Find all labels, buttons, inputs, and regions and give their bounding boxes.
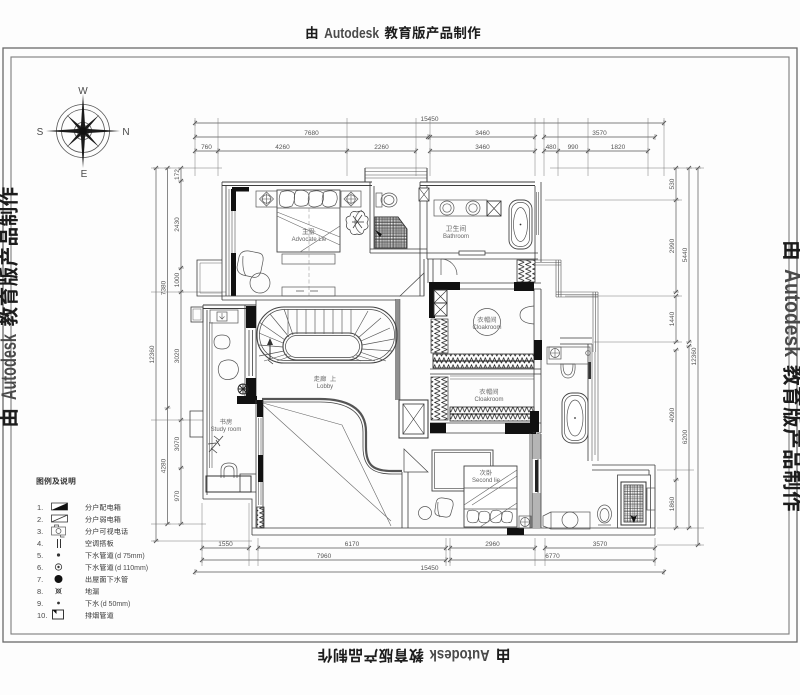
svg-text:990: 990 bbox=[568, 144, 579, 151]
svg-text:2.: 2. bbox=[37, 515, 43, 524]
svg-text:6.: 6. bbox=[37, 563, 43, 572]
svg-text:1000: 1000 bbox=[174, 272, 181, 287]
svg-text:530: 530 bbox=[669, 178, 676, 189]
svg-text:N: N bbox=[122, 127, 129, 138]
svg-text:4280: 4280 bbox=[161, 458, 168, 473]
svg-text:7380: 7380 bbox=[161, 280, 168, 295]
svg-text:Autodesk: Autodesk bbox=[324, 26, 380, 42]
svg-text:W: W bbox=[78, 86, 88, 97]
svg-text:4090: 4090 bbox=[669, 407, 676, 422]
svg-text:E: E bbox=[81, 169, 88, 180]
svg-text:7680: 7680 bbox=[304, 130, 319, 137]
svg-text:3570: 3570 bbox=[592, 130, 607, 137]
svg-text:Autodesk: Autodesk bbox=[780, 269, 800, 358]
svg-text:Autodesk: Autodesk bbox=[429, 646, 489, 663]
svg-text:7.: 7. bbox=[37, 575, 43, 584]
svg-text:(d 110mm): (d 110mm) bbox=[115, 565, 148, 572]
svg-text:172: 172 bbox=[174, 169, 181, 180]
svg-text:Autodesk: Autodesk bbox=[0, 334, 21, 400]
svg-text:3070: 3070 bbox=[174, 436, 181, 451]
svg-text:970: 970 bbox=[174, 490, 181, 501]
svg-text:6770: 6770 bbox=[545, 553, 560, 560]
svg-text:9.: 9. bbox=[37, 599, 43, 608]
svg-text:1440: 1440 bbox=[669, 311, 676, 326]
svg-text:2960: 2960 bbox=[485, 541, 500, 548]
svg-text:12360: 12360 bbox=[149, 345, 156, 363]
svg-text:2430: 2430 bbox=[174, 217, 181, 232]
svg-text:5.: 5. bbox=[37, 551, 43, 560]
svg-text:3460: 3460 bbox=[475, 130, 490, 137]
svg-text:15450: 15450 bbox=[420, 565, 438, 572]
svg-text:(d 75mm): (d 75mm) bbox=[115, 553, 145, 560]
svg-text:(d 50mm): (d 50mm) bbox=[100, 601, 130, 608]
svg-text:1820: 1820 bbox=[611, 144, 626, 151]
svg-text:1550: 1550 bbox=[218, 541, 233, 548]
svg-text:Second lie: Second lie bbox=[472, 478, 501, 484]
svg-text:760: 760 bbox=[201, 144, 212, 151]
svg-text:4.: 4. bbox=[37, 539, 43, 548]
svg-text:Cloakroom: Cloakroom bbox=[474, 397, 503, 403]
svg-text:2990: 2990 bbox=[669, 238, 676, 253]
svg-text:12360: 12360 bbox=[691, 347, 698, 365]
svg-text:Cloakroom: Cloakroom bbox=[472, 325, 501, 331]
svg-text:3460: 3460 bbox=[475, 144, 490, 151]
svg-text:6200: 6200 bbox=[682, 429, 689, 444]
svg-text:Advocate Lie: Advocate Lie bbox=[292, 237, 327, 243]
svg-text:3020: 3020 bbox=[174, 348, 181, 363]
svg-text:6170: 6170 bbox=[345, 541, 360, 548]
svg-text:15450: 15450 bbox=[420, 116, 438, 123]
svg-text:S: S bbox=[37, 127, 44, 138]
svg-text:3570: 3570 bbox=[593, 541, 608, 548]
svg-text:7960: 7960 bbox=[317, 553, 332, 560]
svg-text:3.: 3. bbox=[37, 527, 43, 536]
svg-text:10.: 10. bbox=[37, 611, 47, 620]
svg-text:1860: 1860 bbox=[669, 496, 676, 511]
svg-text:5440: 5440 bbox=[682, 247, 689, 262]
svg-text:Study room: Study room bbox=[211, 427, 242, 433]
svg-text:Bathroom: Bathroom bbox=[443, 234, 469, 240]
svg-text:1.: 1. bbox=[37, 503, 43, 512]
svg-text:480: 480 bbox=[546, 144, 557, 151]
svg-text:4260: 4260 bbox=[275, 144, 290, 151]
svg-text:8.: 8. bbox=[37, 587, 43, 596]
svg-text:Lobby: Lobby bbox=[317, 384, 333, 390]
svg-text:2260: 2260 bbox=[374, 144, 389, 151]
